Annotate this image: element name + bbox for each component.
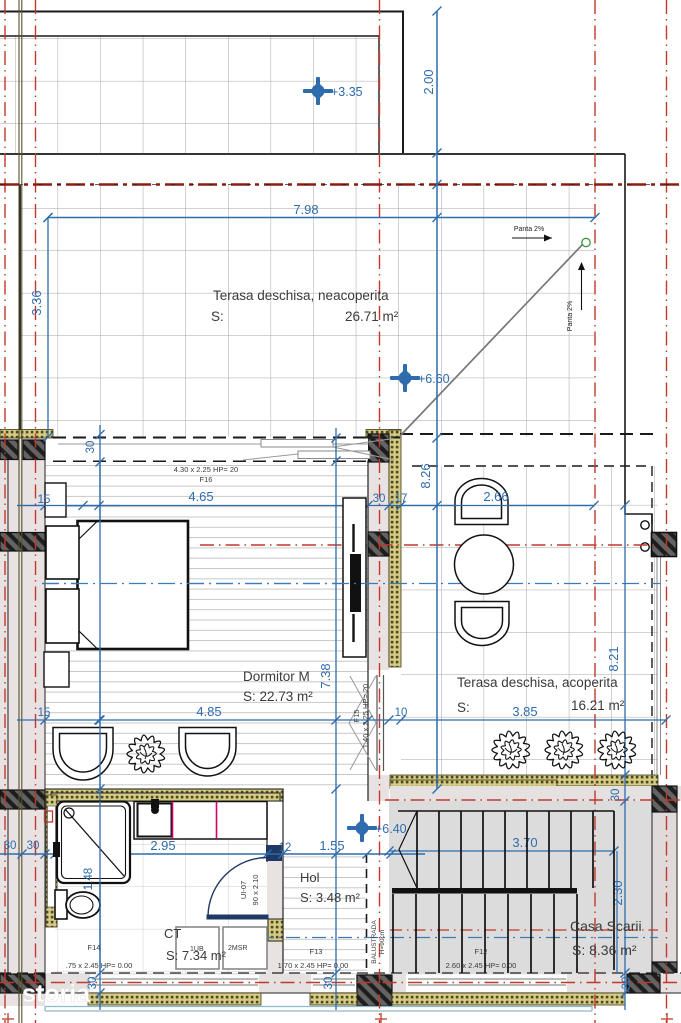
svg-text:30: 30 <box>373 493 386 505</box>
svg-text:10: 10 <box>395 707 408 719</box>
svg-text:Terasa deschisa, acoperita: Terasa deschisa, acoperita <box>457 675 618 690</box>
svg-text:30: 30 <box>85 441 97 454</box>
svg-text:F15: F15 <box>352 710 361 723</box>
svg-text:.75 x 2.45 HP= 0.00: .75 x 2.45 HP= 0.00 <box>66 961 133 970</box>
svg-text:BALUSTRADA: BALUSTRADA <box>371 920 378 964</box>
svg-text:S:: S: <box>211 309 224 324</box>
svg-text:4.85: 4.85 <box>196 704 221 719</box>
svg-text:17: 17 <box>395 493 408 505</box>
svg-text:Panta 2%: Panta 2% <box>567 301 574 331</box>
svg-text:Panta 2%: Panta 2% <box>514 226 544 233</box>
svg-text:30: 30 <box>610 789 622 802</box>
svg-text:30: 30 <box>621 977 633 990</box>
svg-text:1.55: 1.55 <box>319 838 344 853</box>
svg-text:F12: F12 <box>475 947 488 956</box>
svg-text:2.00: 2.00 <box>421 69 436 94</box>
svg-text:S:: S: <box>457 700 470 715</box>
svg-text:2MSR: 2MSR <box>228 945 247 952</box>
svg-text:UI-07: UI-07 <box>239 881 248 899</box>
svg-text:1.70 x 2.45 HP= 0.00: 1.70 x 2.45 HP= 0.00 <box>278 961 349 970</box>
svg-text:2.95: 2.95 <box>150 838 175 853</box>
svg-text:7.98: 7.98 <box>293 202 318 217</box>
svg-text:3.36: 3.36 <box>29 290 44 315</box>
svg-text:1.48: 1.48 <box>83 868 95 890</box>
svg-text:Hol: Hol <box>300 870 320 885</box>
svg-text:30: 30 <box>27 840 40 852</box>
svg-text:3.70: 3.70 <box>512 835 537 850</box>
svg-text:2.30: 2.30 <box>610 880 625 905</box>
svg-text:26.71 m²: 26.71 m² <box>345 309 399 324</box>
svg-text:+3.35: +3.35 <box>331 85 363 99</box>
svg-text:F14: F14 <box>88 943 101 952</box>
svg-text:4.30 x 2.25 HP= 20: 4.30 x 2.25 HP= 20 <box>174 465 238 474</box>
svg-text:2.60 x 2.45 HP= 0.00: 2.60 x 2.45 HP= 0.00 <box>446 961 517 970</box>
svg-text:7.38: 7.38 <box>318 663 333 688</box>
svg-text:CT: CT <box>164 926 181 941</box>
svg-text:S: 3.48 m²: S: 3.48 m² <box>300 890 361 905</box>
svg-text:F13: F13 <box>310 947 323 956</box>
svg-text:F16: F16 <box>200 475 213 484</box>
svg-text:storia: storia <box>22 980 91 1008</box>
svg-text:12: 12 <box>279 842 292 854</box>
svg-text:16.21 m²: 16.21 m² <box>571 698 625 713</box>
svg-text:S: 22.73 m²: S: 22.73 m² <box>243 689 313 704</box>
svg-text:1.40 x 2.25 HP= 20: 1.40 x 2.25 HP= 20 <box>361 684 370 748</box>
svg-text:S: 8.36 m²: S: 8.36 m² <box>572 942 637 958</box>
svg-text:4.65: 4.65 <box>188 489 213 504</box>
svg-text:30: 30 <box>323 977 335 990</box>
svg-text:30: 30 <box>4 840 17 852</box>
svg-text:H=90cm: H=90cm <box>379 930 386 954</box>
svg-text:Terasa deschisa, neacoperita: Terasa deschisa, neacoperita <box>213 288 389 303</box>
svg-text:90 x 2.10: 90 x 2.10 <box>251 875 260 906</box>
svg-text:15: 15 <box>38 707 51 719</box>
svg-text:8.21: 8.21 <box>606 646 621 671</box>
svg-text:15: 15 <box>38 494 51 506</box>
svg-text:Casa Scarii: Casa Scarii <box>570 918 642 934</box>
svg-text:2.66: 2.66 <box>483 489 508 504</box>
svg-text:+6.40: +6.40 <box>375 822 407 836</box>
svg-text:3.85: 3.85 <box>512 704 537 719</box>
svg-text:Dormitor M: Dormitor M <box>243 669 310 684</box>
svg-text:8.26: 8.26 <box>418 463 433 488</box>
svg-text:+6.60: +6.60 <box>418 372 450 386</box>
svg-text:1UB: 1UB <box>190 946 204 953</box>
